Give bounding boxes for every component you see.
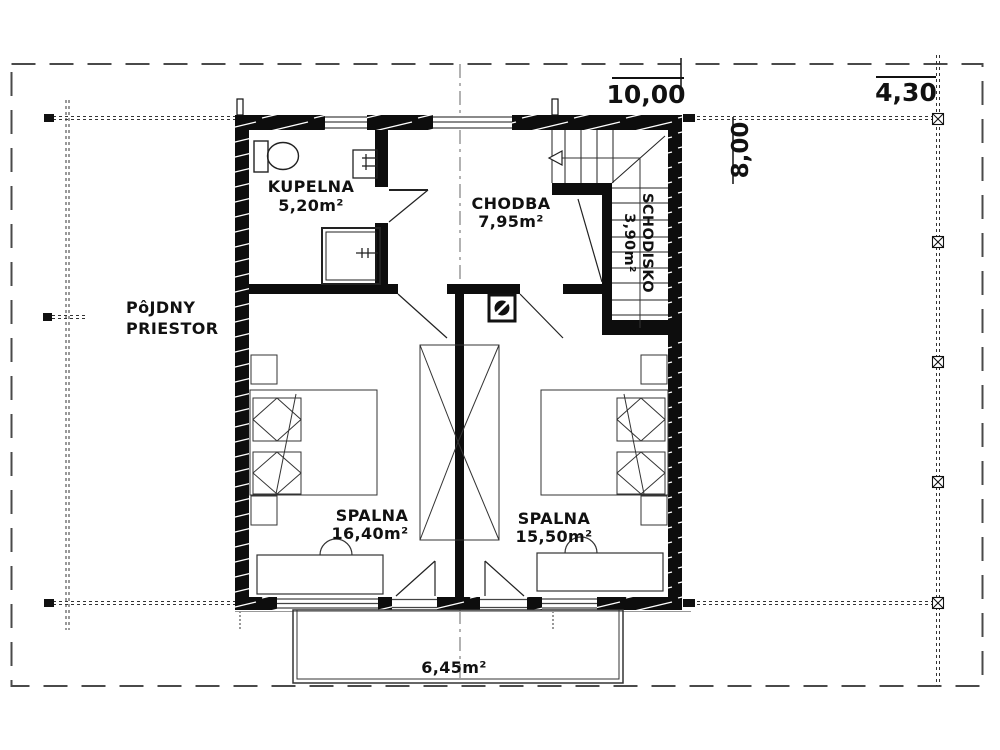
label-spalna-right-area: 15,50m²: [515, 527, 592, 546]
label-chodba-area: 7,95m²: [478, 212, 544, 231]
label-chodba: CHODBA: [472, 194, 551, 213]
wall-ticks: [237, 99, 558, 115]
dimension-width: 10,00: [606, 80, 685, 109]
label-schodisko: SCHODISKO: [639, 193, 655, 293]
floor-plan-drawing: 10,00 4,30 8,00: [0, 0, 1000, 750]
sink: [353, 150, 377, 178]
axis-markers: [933, 114, 944, 609]
label-attic-line1: PôJDNY: [126, 298, 195, 317]
bed-left: [250, 355, 377, 525]
label-kupelna-area: 5,20m²: [278, 196, 344, 215]
toilet: [254, 141, 299, 172]
label-attic-line2: PRIESTOR: [126, 319, 219, 338]
bed-right: [541, 355, 668, 525]
label-balkon-area: 6,45m²: [421, 658, 487, 677]
label-spalna-left: SPALNA: [336, 506, 409, 525]
label-schodisko-area: 3,90m²: [621, 213, 637, 273]
chimney: [489, 295, 515, 321]
axis-lines: [43, 55, 940, 686]
label-spalna-left-area: 16,40m²: [331, 524, 408, 543]
dimension-depth: 8,00: [728, 122, 754, 179]
floor-plan-canvas: 10,00 4,30 8,00: [0, 0, 1000, 750]
shower: [322, 228, 380, 284]
roof-outline: [12, 64, 983, 686]
label-spalna-right: SPALNA: [518, 509, 591, 528]
label-kupelna: KUPELNA: [268, 177, 355, 196]
stair-direction-arrow: [549, 151, 562, 165]
dresser-left: [257, 539, 383, 594]
dimension-right-offset: 4,30: [875, 78, 937, 107]
